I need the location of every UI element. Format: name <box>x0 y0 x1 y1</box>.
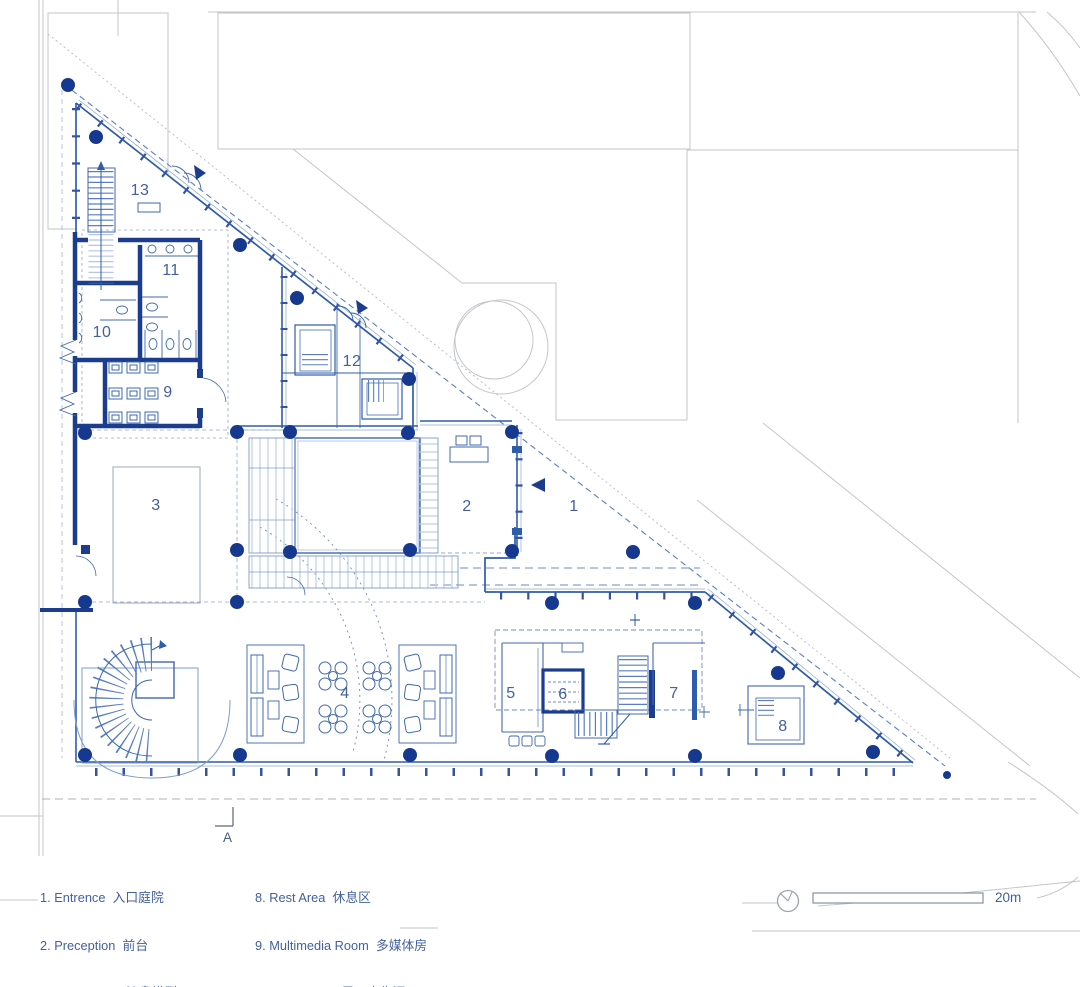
legend-column-2: 8. Rest Area 休息区 9. Multimedia Room 多媒体房… <box>255 858 427 987</box>
section-marker-label: A <box>223 830 232 845</box>
room-label-men-toilet: 10 <box>93 324 112 342</box>
parcel-notch <box>462 283 687 420</box>
room-label-multimedia: 9 <box>163 384 172 402</box>
column <box>230 425 244 439</box>
room-label-preception: 2 <box>462 498 471 516</box>
room-label-reception: 13 <box>131 182 150 200</box>
column <box>233 238 247 252</box>
room-label-kids: 7 <box>669 685 678 703</box>
folding-door-2 <box>60 392 76 416</box>
room-label-women-toilet: 11 <box>162 262 180 280</box>
room-label-meeting: 4 <box>340 685 349 703</box>
column <box>283 425 297 439</box>
column <box>78 426 92 440</box>
legend-item-2: 2. Preception 前台 <box>40 938 177 954</box>
road-edge-2 <box>763 423 1080 678</box>
road-curve-topright2 <box>1047 12 1080 48</box>
column <box>403 543 417 557</box>
library-entry-arrow <box>356 300 368 314</box>
column <box>626 545 640 559</box>
column <box>89 130 103 144</box>
column <box>233 748 247 762</box>
compass-needle <box>780 893 788 901</box>
column <box>866 745 880 759</box>
compass-needle-2 <box>788 892 792 901</box>
entry-arrow <box>194 165 206 180</box>
stair-main-wall <box>649 670 655 718</box>
floor-plan-drawing <box>0 0 1080 987</box>
room-label-storage: 6 <box>558 686 567 704</box>
column <box>78 748 92 762</box>
column <box>402 372 416 386</box>
column <box>61 78 75 92</box>
floor-plan-sheet: 1 2 3 4 5 6 7 8 9 10 11 12 13 A 20m 1. E… <box>0 0 1080 987</box>
scale-bar <box>813 893 983 903</box>
legend-column-1: 1. Entrence 入口庭院 2. Preception 前台 3. Mod… <box>40 858 177 987</box>
room9-door-frame-2 <box>197 408 203 418</box>
room-label-entrence: 1 <box>569 498 578 516</box>
room-label-library: 12 <box>343 353 362 371</box>
column <box>401 426 415 440</box>
column <box>688 749 702 763</box>
door-fitting-2 <box>512 528 522 535</box>
room-label-coffee-bar: 5 <box>506 685 515 703</box>
wall-column-block <box>81 545 90 554</box>
atrium-band-east <box>419 438 438 553</box>
column <box>771 666 785 680</box>
tree-outline <box>454 300 548 394</box>
column <box>290 291 304 305</box>
road-curve <box>1008 762 1078 814</box>
scale-bar-label: 20m <box>995 890 1021 905</box>
room-label-model-area: 3 <box>151 497 160 515</box>
neighbor-parcel-top <box>218 13 690 149</box>
column <box>505 425 519 439</box>
column <box>230 595 244 609</box>
door-fitting-1 <box>512 446 522 453</box>
legend-item-8: 8. Rest Area 休息区 <box>255 890 427 906</box>
room9-door-frame-1 <box>197 369 203 378</box>
column <box>78 595 92 609</box>
column <box>283 545 297 559</box>
legend-item-1: 1. Entrence 入口庭院 <box>40 890 177 906</box>
road-curve-scale <box>1037 877 1078 898</box>
column <box>545 596 559 610</box>
kids-shelf-bar <box>692 670 697 720</box>
column <box>403 748 417 762</box>
column <box>230 543 244 557</box>
legend-item-9: 9. Multimedia Room 多媒体房 <box>255 938 427 954</box>
road-curve-topright <box>1019 12 1080 96</box>
room-label-rest: 8 <box>778 718 787 736</box>
tree-inner-outline <box>455 301 533 379</box>
column <box>545 749 559 763</box>
atrium-band-west <box>249 438 295 553</box>
column <box>505 544 519 558</box>
column <box>688 596 702 610</box>
column-small <box>943 771 951 779</box>
parcel-diagonal <box>293 149 462 283</box>
